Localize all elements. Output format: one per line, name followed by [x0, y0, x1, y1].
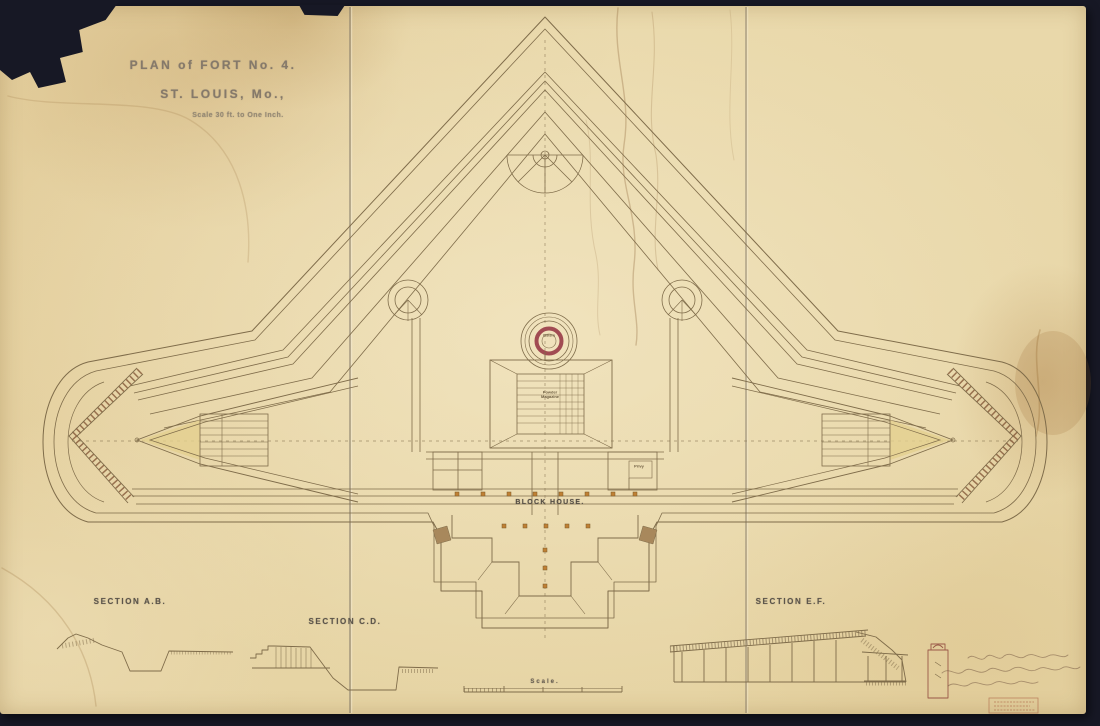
post-markers — [455, 492, 637, 588]
block-house-label: BLOCK HOUSE. — [495, 499, 605, 506]
map-title-line2: ST. LOUIS, Mo., — [138, 87, 308, 101]
paper-edge-notch — [299, 5, 345, 16]
block-house — [433, 515, 657, 614]
scale-bar — [464, 686, 622, 692]
section-ef-label: SECTION E.F. — [741, 597, 841, 606]
section-ab-drawing — [57, 634, 233, 671]
section-ab-label: SECTION A.B. — [80, 597, 180, 606]
scale-bar-label: Scale. — [505, 679, 585, 685]
plan-drawing — [0, 0, 1100, 726]
right-bastion — [732, 368, 1021, 503]
handwritten-note — [942, 654, 1080, 686]
cistern-label: Cistern — [519, 334, 579, 338]
privy-label: Privy — [626, 464, 652, 469]
section-cd-label: SECTION C.D. — [295, 617, 395, 626]
powder-magazine-label-line2: Magazine — [520, 395, 580, 400]
map-title-line1: PLAN of FORT No. 4. — [128, 58, 298, 72]
map-scale-note: Scale 30 ft. to One Inch. — [168, 112, 308, 119]
section-cd-drawing — [250, 646, 438, 690]
approval-stamp — [989, 698, 1038, 713]
powder-magazine — [490, 352, 612, 448]
powder-magazine-label: Powder Magazine — [520, 390, 580, 399]
scanned-fort-plan: PLAN of FORT No. 4. ST. LOUIS, Mo., Scal… — [0, 0, 1100, 726]
cistern — [521, 313, 577, 369]
left-bastion — [69, 368, 358, 503]
gallery-lines — [132, 318, 958, 515]
section-ef-drawing — [670, 630, 948, 698]
curtain-buildings — [433, 452, 657, 490]
